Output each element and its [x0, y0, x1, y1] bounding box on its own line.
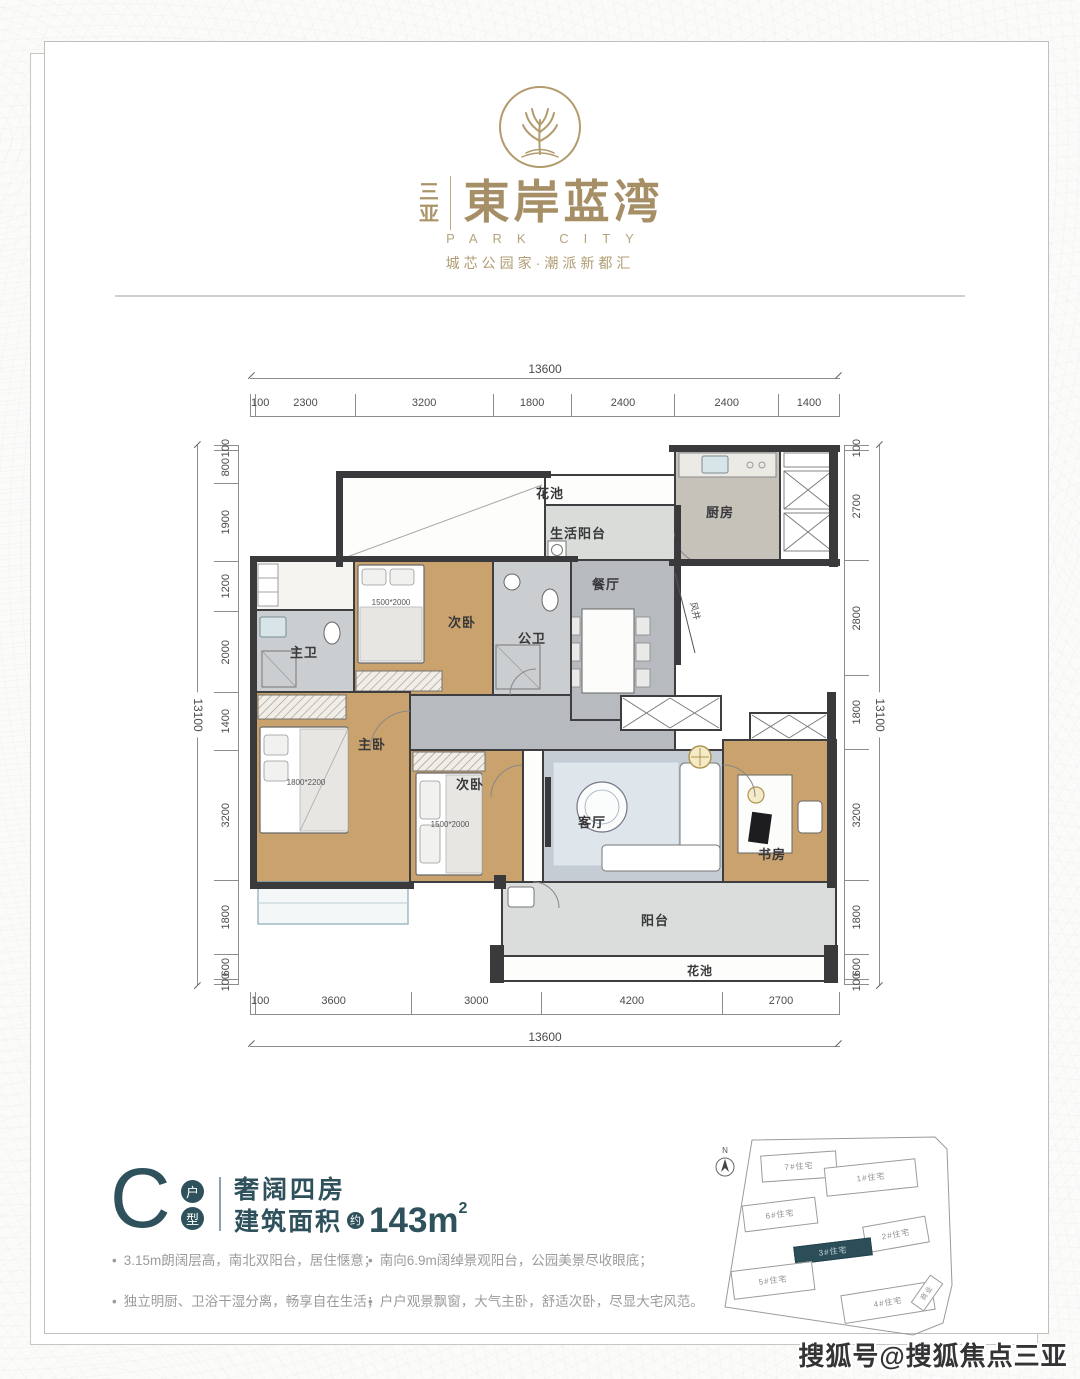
bullet-icon [368, 1293, 373, 1310]
dim-segment: 1400 [779, 394, 840, 416]
feature-item: 独立明厨、卫浴干湿分离，畅享自在生活； [112, 1293, 380, 1310]
bullet-icon [368, 1252, 373, 1269]
feature-item: 户户观景飘窗，大气主卧，舒适次卧，尽显大宅风范。 [368, 1293, 704, 1310]
svg-text:餐厅: 餐厅 [591, 577, 620, 592]
site-plan: N 7#住宅1#住宅6#住宅2#住宅3#住宅5#住宅4#住宅商业 [695, 1135, 990, 1340]
unit-area-prefix: 建筑面积 [234, 1202, 342, 1238]
dim-right-segments: 10027002800180032001800600100 [844, 445, 869, 985]
svg-text:1800*2200: 1800*2200 [287, 778, 326, 787]
study-closet [750, 713, 828, 740]
unit-type-bottom-badge: 型 [181, 1207, 204, 1230]
brand-lockup: 三亚 東岸蓝湾 [0, 176, 1080, 230]
dim-bottom-segments: 1003600300042002700 [250, 992, 840, 1015]
dim-segment: 2700 [845, 451, 869, 561]
unit-type-badges: 户 型 [181, 1180, 204, 1230]
section-divider [115, 295, 965, 297]
features-left: 3.15m朗阔层高，南北双阳台，居住惬意；独立明厨、卫浴干湿分离，畅享自在生活； [112, 1252, 380, 1310]
svg-text:次卧: 次卧 [456, 777, 484, 792]
dim-segment: 1800 [845, 676, 869, 750]
flower-bed-bottom [495, 956, 836, 981]
dim-segment: 2700 [723, 992, 840, 1014]
dim-left-total: 13100 [190, 445, 206, 985]
dim-bottom-total: 13600 [250, 1032, 840, 1052]
dim-segment: 3000 [412, 992, 542, 1014]
bullet-icon [112, 1252, 117, 1269]
dim-top-total: 13600 [250, 364, 840, 384]
brand-name: 東岸蓝湾 [464, 180, 664, 226]
dim-segment: 3600 [256, 992, 412, 1014]
dim-left-segments: 100800190012002000140032001800600100 [214, 445, 239, 985]
dim-segment: 2000 [214, 612, 238, 694]
dim-segment: 1800 [845, 881, 869, 955]
site-plan-buildings: 7#住宅1#住宅6#住宅2#住宅3#住宅5#住宅4#住宅商业 [695, 1135, 990, 1340]
svg-text:次卧: 次卧 [448, 615, 476, 630]
brand-tree-icon [497, 84, 583, 170]
room-entry [254, 560, 354, 610]
feature-item: 3.15m朗阔层高，南北双阳台，居住惬意； [112, 1252, 380, 1269]
hall-closet [621, 696, 721, 730]
dim-segment: 2800 [845, 561, 869, 676]
unit-type-top-badge: 户 [181, 1180, 204, 1203]
unit-area-value: 143m2 [369, 1203, 467, 1238]
brand-divider [450, 176, 451, 230]
svg-text:厨房: 厨房 [706, 505, 734, 520]
svg-text:1500*2000: 1500*2000 [431, 820, 470, 829]
svg-text:阳台: 阳台 [641, 913, 669, 928]
siteplan-building: 6#住宅 [742, 1197, 819, 1233]
dim-segment: 100 [214, 980, 238, 985]
dim-segment: 100 [845, 980, 869, 985]
brand-city: 三亚 [417, 181, 437, 225]
svg-text:公卫: 公卫 [518, 631, 546, 646]
dim-segment: 3200 [845, 750, 869, 881]
brand-tagline: 城芯公园家·潮派新都汇 [0, 253, 1080, 273]
room-master: 1800*2200 [254, 692, 410, 882]
dim-segment: 1400 [214, 693, 238, 751]
watermark: 搜狐号@搜狐焦点三亚站 [786, 1336, 1080, 1379]
unit-headline: 奢阔四房 [234, 1170, 346, 1206]
svg-text:风井: 风井 [688, 601, 703, 621]
siteplan-building: 3#住宅 [793, 1237, 873, 1264]
svg-text:花池: 花池 [536, 486, 564, 501]
siteplan-building: 5#住宅 [731, 1261, 816, 1300]
dim-segment: 1200 [214, 562, 238, 611]
features-right: 南向6.9m阔绰景观阳台，公园美景尽收眼底；户户观景飘窗，大气主卧，舒适次卧，尽… [368, 1252, 704, 1310]
unit-divider [219, 1177, 221, 1231]
unit-letter: C [110, 1156, 171, 1240]
unit-area: 建筑面积 约 143m2 [234, 1202, 467, 1238]
svg-text:生活阳台: 生活阳台 [550, 526, 606, 541]
svg-text:客厅: 客厅 [578, 815, 606, 830]
siteplan-building: 商业 [911, 1274, 944, 1311]
dim-segment: 2400 [572, 394, 676, 416]
floor-plan: 1500*2000 1800*2200 [250, 445, 840, 985]
svg-text:主卫: 主卫 [290, 645, 318, 660]
svg-text:1500*2000: 1500*2000 [372, 598, 411, 607]
dim-right-total: 13100 [872, 445, 888, 985]
dim-segment: 2300 [256, 394, 355, 416]
dim-segment: 3200 [356, 394, 494, 416]
dim-top-segments: 100230032001800240024001400 [250, 394, 840, 417]
feature-item: 南向6.9m阔绰景观阳台，公园美景尽收眼底； [368, 1252, 704, 1269]
dim-segment: 4200 [542, 992, 723, 1014]
bullet-icon [112, 1293, 117, 1310]
siteplan-building: 2#住宅 [862, 1216, 930, 1254]
room-living [543, 746, 723, 882]
svg-text:主卧: 主卧 [358, 737, 386, 752]
kitchen-closet [780, 449, 836, 563]
brand-latin: PARK CITY [0, 231, 1080, 246]
svg-text:花池: 花池 [687, 963, 713, 978]
dim-segment: 1900 [214, 484, 238, 562]
room-guest-bath [493, 560, 571, 695]
poster: 三亚 東岸蓝湾 PARK CITY 城芯公园家·潮派新都汇 13600 1002… [0, 0, 1080, 1379]
dim-segment: 1800 [214, 881, 238, 955]
room-bedroom-low: 1500*2000 [410, 750, 523, 882]
dim-segment: 1800 [494, 394, 572, 416]
siteplan-building: 1#住宅 [824, 1158, 919, 1196]
dim-segment: 2400 [675, 394, 779, 416]
unit-area-approx-badge: 约 [347, 1212, 364, 1229]
dim-segment: 3200 [214, 751, 238, 881]
svg-text:书房: 书房 [758, 847, 786, 862]
